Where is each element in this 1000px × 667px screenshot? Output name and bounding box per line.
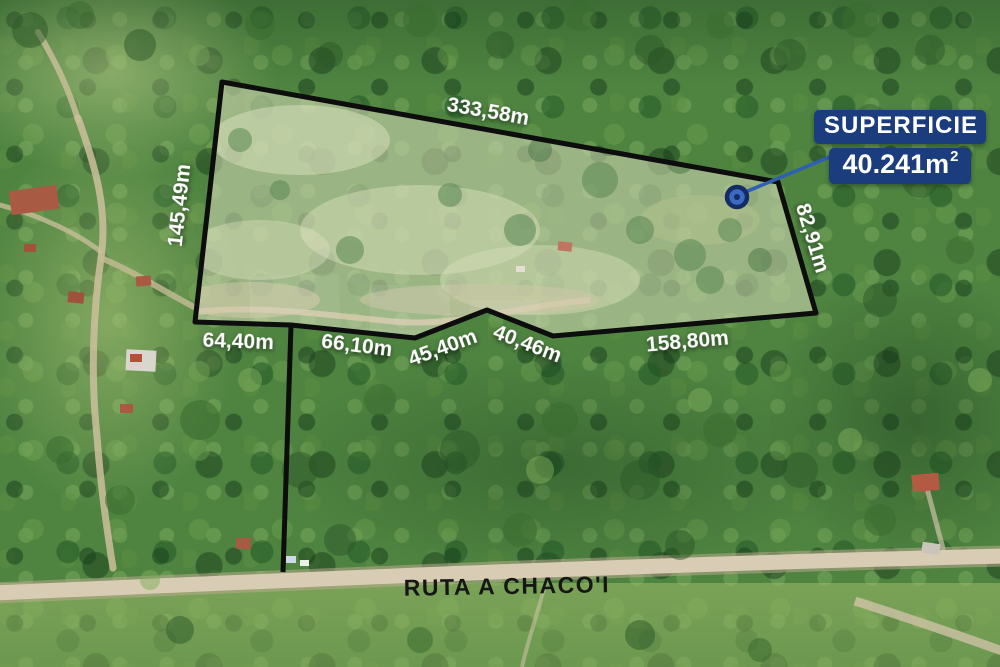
badge-area-value: 40.241m2 bbox=[829, 148, 972, 184]
overlay-svg: 333,58m 145,49m 82,91m 64,40m 66,10m 45,… bbox=[0, 0, 1000, 667]
measurement-bottom-1: 64,40m bbox=[202, 329, 274, 354]
badge-title-text: SUPERFICIE bbox=[824, 112, 978, 139]
superficie-badge: SUPERFICIE 40.241m2 bbox=[812, 110, 988, 184]
aerial-photo: 333,58m 145,49m 82,91m 64,40m 66,10m 45,… bbox=[0, 0, 1000, 667]
badge-area-superscript: 2 bbox=[950, 148, 958, 165]
marker-pin-icon bbox=[727, 187, 747, 207]
boundary-extension-line bbox=[283, 326, 291, 572]
measurement-bottom-5: 158,80m bbox=[645, 326, 730, 356]
badge-area-number: 40.241m bbox=[843, 149, 950, 179]
badge-title: SUPERFICIE bbox=[814, 110, 986, 144]
road-name-label: RUTA A CHACO'I bbox=[404, 571, 611, 601]
measurement-left: 145,49m bbox=[164, 163, 196, 248]
